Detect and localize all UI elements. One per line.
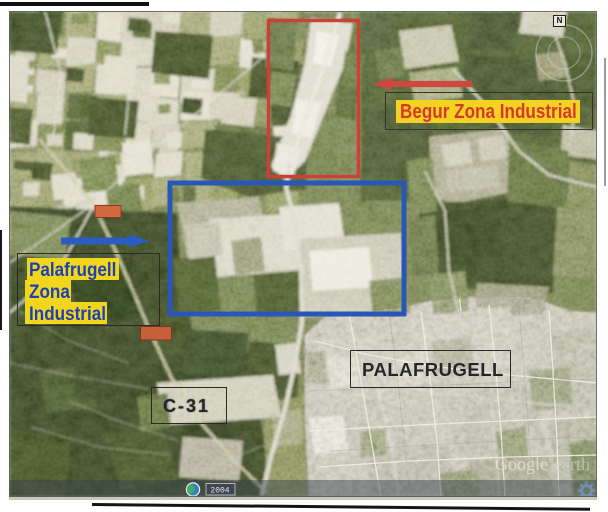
svg-text:2004: 2004 (210, 487, 229, 496)
svg-text:Google: Google (495, 454, 548, 474)
svg-text:earth: earth (554, 454, 590, 474)
